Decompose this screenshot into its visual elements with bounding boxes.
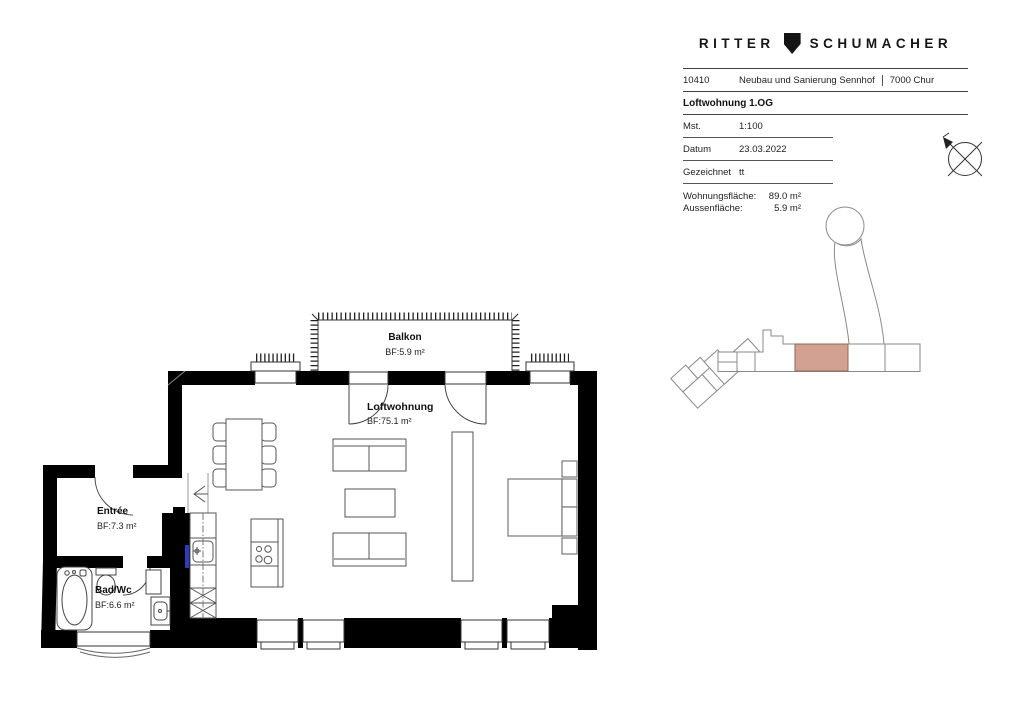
field-value: 1:100 (739, 121, 763, 132)
key-plan (671, 207, 920, 408)
keyplan-highlight-unit (795, 344, 848, 371)
room-area: BF:75.1 m² (367, 415, 433, 427)
bed-headboard (562, 507, 577, 536)
divider (683, 183, 833, 184)
nightstand (562, 461, 577, 477)
sofa-group (333, 439, 406, 566)
chair (261, 469, 276, 487)
room-name: Loftwohnung (367, 401, 433, 413)
nightstand (562, 538, 577, 554)
balcony-door-right (445, 372, 486, 424)
project-row: 10410 Neubau und Sanierung Sennhof 7000 … (683, 69, 968, 92)
area-row-wohnung: Wohnungsfläche: 89.0 m² (683, 191, 968, 203)
field-row-date: Datum 23.03.2022 (683, 138, 968, 155)
dining-table-group (213, 419, 276, 490)
keyplan-tower (834, 239, 884, 344)
field-label: Mst. (683, 121, 739, 132)
field-value: 23.03.2022 (739, 144, 787, 155)
room-name: Entrée (97, 506, 137, 518)
room-area: BF:6.6 m² (95, 599, 135, 611)
field-row-drawn-by: Gezeichnet tt (683, 161, 968, 178)
project-number: 10410 (683, 75, 739, 86)
riser-marker (185, 545, 189, 568)
area-label: Aussenfläche: (683, 203, 757, 215)
kitchen-counter (190, 513, 216, 618)
area-row-aussen: Aussenfläche: 5.9 m² (683, 203, 968, 215)
bathtub (57, 567, 92, 630)
dining-table (226, 419, 262, 490)
area-value: 5.9 m² (757, 203, 801, 215)
area-label: Wohnungsfläche: (683, 191, 757, 203)
area-summary: Wohnungsfläche: 89.0 m² Aussenfläche: 5.… (683, 191, 968, 215)
room-label-balkon: Balkon BF:5.9 m² (385, 332, 425, 358)
coffee-table (345, 489, 395, 517)
bed-headboard (562, 479, 577, 507)
wardrobe-divider (452, 432, 473, 581)
room-area: BF:5.9 m² (385, 346, 425, 358)
field-label: Gezeichnet (683, 167, 739, 178)
area-value: 89.0 m² (757, 191, 801, 203)
window-top-left (251, 358, 300, 383)
field-value: tt (739, 167, 744, 178)
brand-left: RITTER (699, 36, 775, 51)
bath-cabinet (146, 570, 161, 594)
project-city: 7000 Chur (890, 75, 934, 86)
drawing-sheet: Balkon BF:5.9 m² Loftwohnung BF:75.1 m² … (0, 0, 1024, 717)
bed-mattress (508, 479, 562, 536)
room-label-entree: Entrée BF:7.3 m² (97, 506, 137, 532)
room-label-loftwohnung: Loftwohnung BF:75.1 m² (367, 401, 433, 427)
project-name: Neubau und Sanierung Sennhof (739, 75, 875, 86)
field-label: Datum (683, 144, 739, 155)
field-row-scale: Mst. 1:100 (683, 115, 968, 132)
title-block: RITTER SCHUMACHER 10410 Neubau und Sanie… (683, 33, 968, 215)
drawing-title: Loftwohnung 1.OG (683, 92, 968, 115)
bathroom-window (77, 632, 150, 657)
chair (261, 446, 276, 464)
passage-opening (188, 473, 208, 513)
room-name: Bad/Wc (95, 585, 135, 597)
room-label-bad-wc: Bad/Wc BF:6.6 m² (95, 585, 135, 611)
window-top-right (526, 358, 574, 383)
room-name: Balkon (385, 332, 425, 344)
brand-right: SCHUMACHER (810, 36, 953, 51)
chair (261, 423, 276, 441)
washbasin (146, 570, 170, 625)
divider (882, 75, 883, 86)
shield-icon (784, 33, 801, 54)
bed-group (508, 461, 577, 554)
kitchen-island (251, 519, 283, 587)
room-area: BF:7.3 m² (97, 520, 137, 532)
brand-logo: RITTER SCHUMACHER (683, 33, 968, 54)
